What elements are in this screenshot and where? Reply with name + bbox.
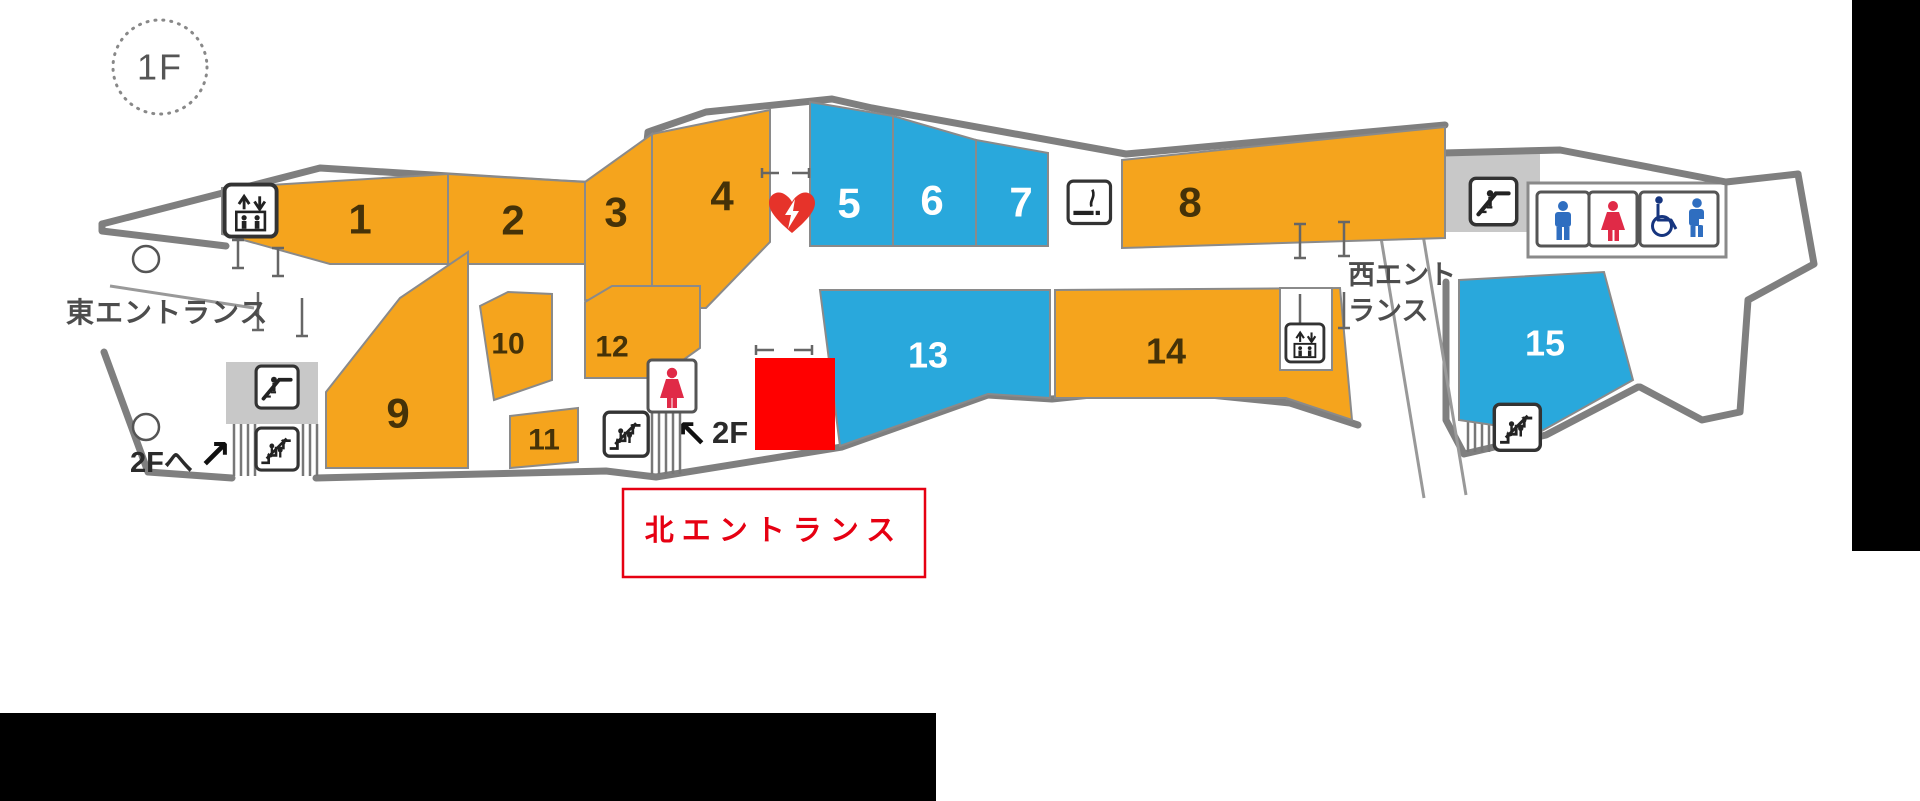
zone-6-number: 6 [920,177,943,224]
accessible-toilet-icon [1640,192,1718,246]
elevator-icon [225,185,277,237]
floor-map-screen: 1 2 3 4 5 6 7 8 9 10 11 12 13 14 15 [0,0,1920,801]
zone-2-number: 2 [501,197,524,244]
east-entrance-dot [133,246,159,272]
zone-7-number: 7 [1009,179,1032,226]
west-entrance-label-line1: 西エント [1348,260,1456,290]
zone-10-number: 10 [491,328,524,361]
up-left-arrow-icon: ↖ [676,414,708,456]
zone-14-number: 14 [1146,331,1186,372]
bottom-mask-bar [0,713,936,801]
womens-toilet-icon [648,360,696,412]
zone-3-number: 3 [604,189,627,236]
entrance-dot-2f [133,414,159,440]
escalator-icon [256,366,298,408]
zone-12-number: 12 [595,331,628,364]
west-entrance-label-line2: ランス [1348,296,1428,326]
stairs-icon [604,412,648,456]
mens-toilet-icon [1537,192,1589,246]
zone-1-number: 1 [348,196,371,243]
womens-toilet-icon [1589,192,1637,246]
up-right-arrow-icon: ↗ [198,433,232,477]
zone-15-number: 15 [1525,323,1565,364]
zone-8-number: 8 [1178,179,1201,226]
right-mask-bar [1852,0,1920,551]
elevator-icon [1286,324,1324,362]
east-entrance-label: 東エントランス [66,297,268,328]
zone-11-number: 11 [528,424,560,457]
smoking-area-icon [1068,181,1110,223]
north-entrance-callout: 北エントランス [623,489,925,577]
to-2f-center-label: 2F [712,415,748,450]
floor-map-1f: 1 2 3 4 5 6 7 8 9 10 11 12 13 14 15 [0,0,1920,801]
stairs-icon [1494,404,1540,450]
floor-badge: 1F [113,20,207,114]
zone-4-number: 4 [710,173,734,220]
highlight-red-square [755,358,835,450]
escalator-icon [1470,178,1516,224]
zone-13-number: 13 [908,335,948,376]
stairs-icon [256,428,298,470]
to-2f-label: 2Fへ [130,447,193,479]
zone-5-number: 5 [837,180,860,227]
floor-badge-label: 1F [137,47,183,88]
north-entrance-label: 北エントランス [645,514,903,547]
zone-9-number: 9 [386,390,409,437]
